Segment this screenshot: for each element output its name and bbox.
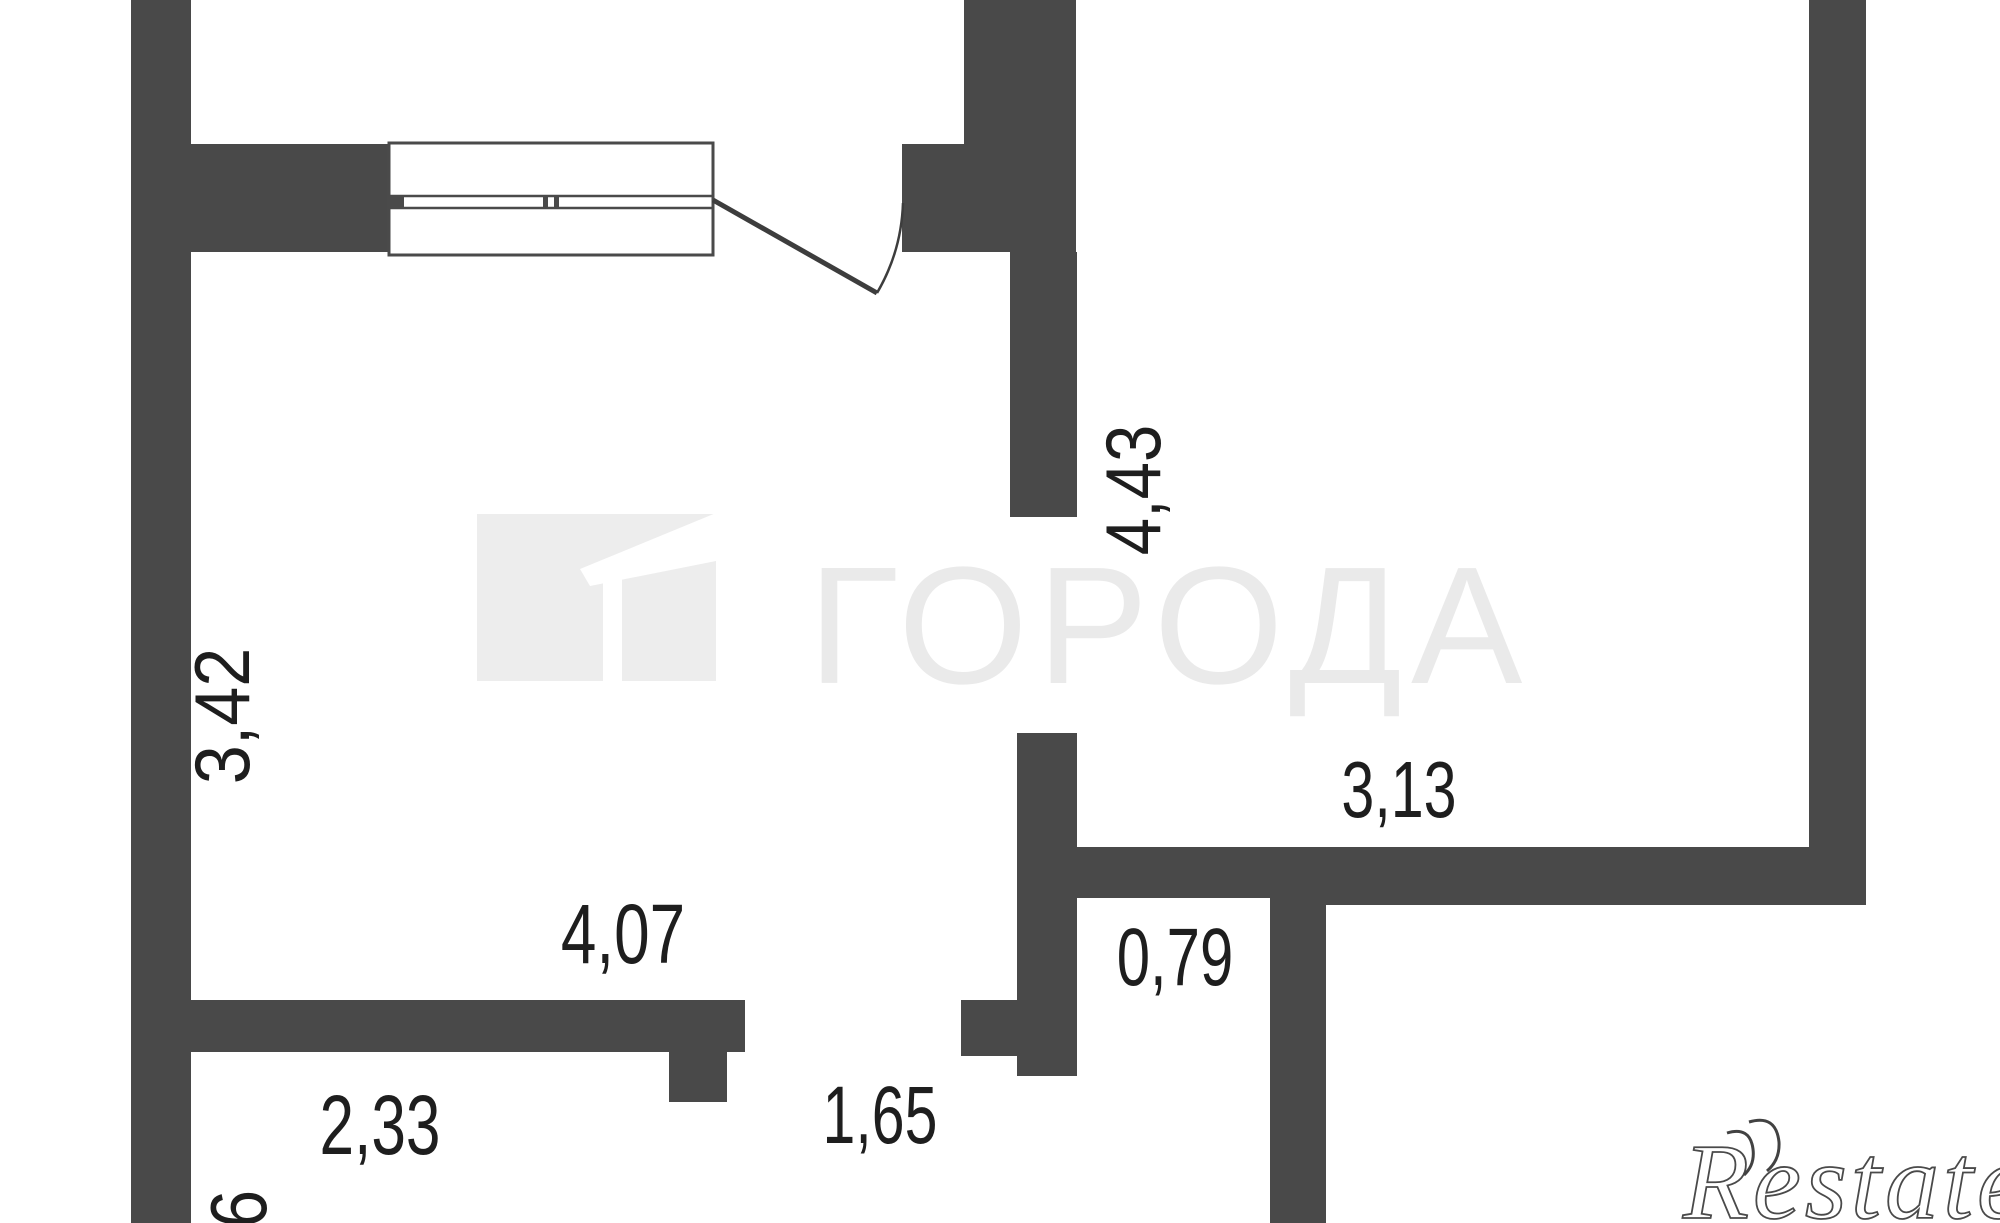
svg-text:4,07: 4,07 bbox=[561, 886, 685, 981]
svg-text:3,13: 3,13 bbox=[1341, 744, 1456, 834]
svg-text:ГОРОДА: ГОРОДА bbox=[808, 533, 1531, 719]
svg-text:0,79: 0,79 bbox=[1117, 912, 1233, 1003]
svg-text:3,42: 3,42 bbox=[179, 648, 266, 785]
svg-text:2,33: 2,33 bbox=[320, 1078, 441, 1172]
svg-text:1,65: 1,65 bbox=[823, 1070, 938, 1162]
svg-text:6: 6 bbox=[193, 1190, 283, 1223]
svg-text:4,43: 4,43 bbox=[1090, 425, 1177, 556]
svg-text:Restate: Restate bbox=[1682, 1123, 2000, 1223]
